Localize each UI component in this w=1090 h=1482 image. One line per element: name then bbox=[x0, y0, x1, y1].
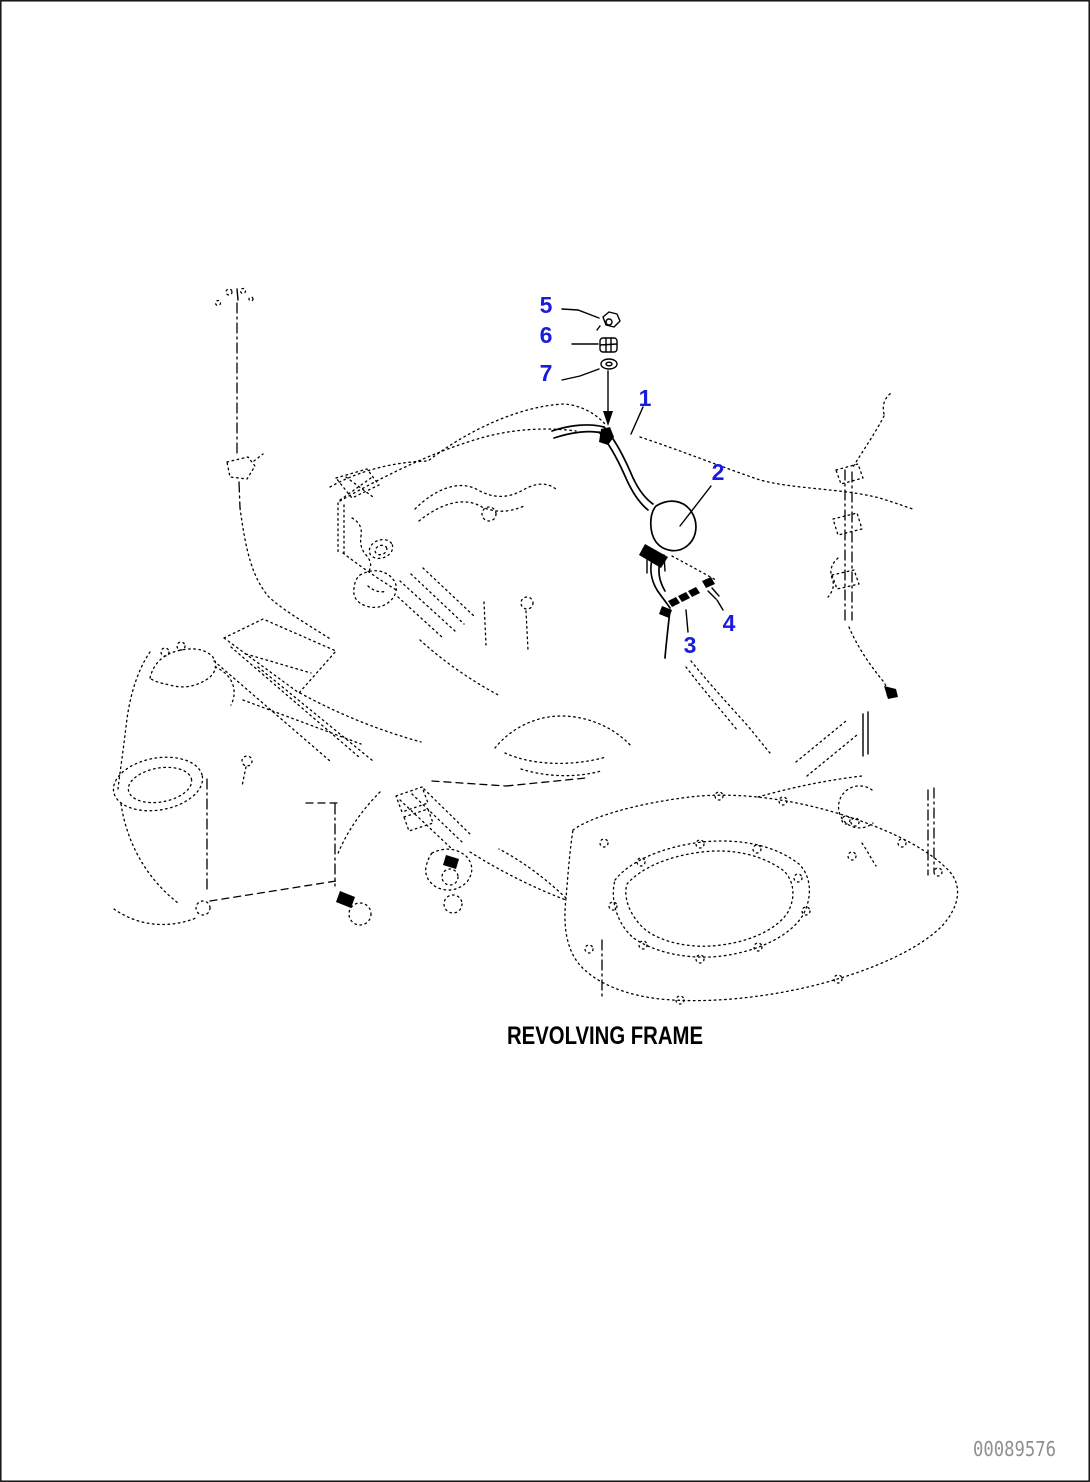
frame-members-sketch bbox=[207, 619, 632, 901]
part-5-bolt-icon bbox=[597, 312, 620, 330]
callout-4: 4 bbox=[723, 610, 736, 636]
callout-5: 5 bbox=[540, 292, 553, 318]
right-lever-sketch bbox=[758, 464, 934, 875]
leader-line-1 bbox=[631, 407, 643, 434]
doc-number: 00089576 bbox=[973, 1437, 1056, 1461]
step-mounts-sketch bbox=[336, 787, 566, 925]
parts-diagram-canvas: 1 2 3 4 5 6 7 REVOLVING FRAME 00089576 bbox=[0, 0, 1090, 1482]
callout-6: 6 bbox=[540, 322, 553, 348]
harness-mount bbox=[599, 427, 614, 445]
leader-line-5 bbox=[562, 309, 599, 318]
part-6-washers-icon bbox=[600, 338, 617, 352]
callout-3: 3 bbox=[684, 632, 697, 658]
leader-line-3 bbox=[686, 610, 688, 632]
page-border bbox=[1, 1, 1089, 1481]
callout-2: 2 bbox=[712, 459, 725, 485]
callout-7: 7 bbox=[540, 360, 553, 386]
leader-lines bbox=[562, 309, 723, 632]
engine-sketch bbox=[336, 469, 558, 696]
leader-line-7 bbox=[562, 369, 599, 380]
harness-line bbox=[552, 425, 770, 753]
muffler-sketch bbox=[109, 642, 252, 924]
callout-labels: 1 2 3 4 5 6 7 bbox=[540, 292, 736, 658]
antenna-sketch bbox=[216, 289, 333, 641]
leader-line-4 bbox=[717, 600, 723, 610]
pointer-arrow bbox=[603, 371, 613, 426]
part-4-bolt bbox=[702, 577, 719, 599]
document-page: 1 2 3 4 5 6 7 REVOLVING FRAME 00089576 bbox=[0, 0, 1090, 1482]
fender-arc-sketch bbox=[330, 393, 913, 509]
part-7-grommet-icon bbox=[601, 359, 617, 369]
figure-title: REVOLVING FRAME bbox=[507, 1022, 703, 1050]
part-2-clamp bbox=[639, 501, 696, 573]
callout-1: 1 bbox=[639, 385, 652, 411]
base-plate-sketch bbox=[499, 792, 958, 1004]
